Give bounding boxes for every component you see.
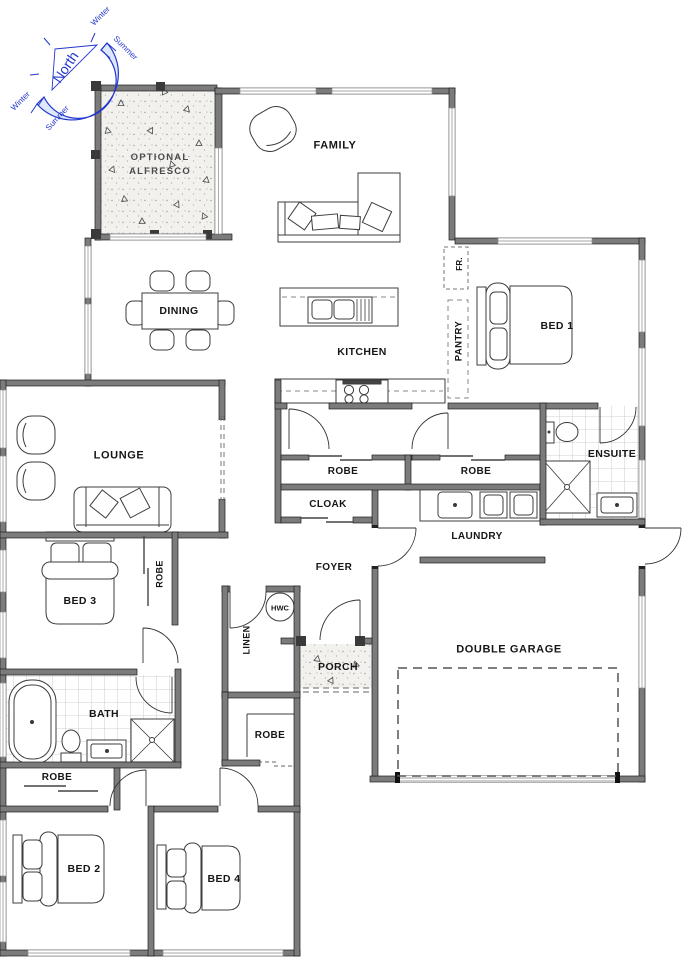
room-label-lounge: LOUNGE — [94, 451, 145, 462]
room-label-bath: BATH — [89, 709, 119, 720]
compass-winter-top-label: Winter — [89, 4, 112, 27]
room-label-pantry: PANTRY — [454, 321, 464, 361]
room-label-fridge: FR. — [456, 257, 464, 271]
room-label-robe-bed3: ROBE — [156, 560, 165, 588]
room-label-hwc: HWC — [271, 604, 289, 612]
room-label-bed2: BED 2 — [68, 864, 101, 875]
lounge-sofa — [74, 487, 171, 532]
garage-clearance-box — [398, 668, 618, 776]
room-label-bed4: BED 4 — [208, 874, 241, 885]
family-sofa — [278, 173, 400, 242]
lounge-armchair-2 — [17, 462, 55, 500]
room-label-kitchen: KITCHEN — [337, 347, 386, 358]
room-label-alfresco-line2: ALFRESCO — [129, 165, 191, 179]
bath-tub — [9, 680, 56, 764]
bath-toilet — [61, 730, 81, 762]
bed3-bed — [42, 532, 118, 624]
room-label-robe-hall-right: ROBE — [461, 467, 492, 477]
ensuite-vanity — [597, 493, 637, 517]
family-armchair — [244, 101, 302, 158]
kitchen-island — [280, 288, 398, 326]
bath-shower — [131, 719, 174, 762]
room-label-robe-bed2: ROBE — [42, 773, 73, 783]
ensuite-shower — [544, 461, 590, 513]
room-label-garage: DOUBLE GARAGE — [456, 645, 562, 656]
laundry-bench — [420, 489, 540, 521]
room-label-robe-hall-left: ROBE — [328, 467, 359, 477]
room-label-laundry: LAUNDRY — [451, 532, 502, 542]
room-label-alfresco: OPTIONAL ALFRESCO — [129, 151, 191, 179]
room-label-linen: LINEN — [243, 626, 252, 655]
lounge-armchair-1 — [17, 416, 55, 454]
room-label-dining: DINING — [159, 306, 198, 317]
bath-vanity — [87, 740, 126, 762]
kitchen-bench — [275, 379, 445, 403]
ensuite-toilet — [545, 422, 578, 443]
room-label-bed3: BED 3 — [64, 596, 97, 607]
room-label-ensuite: ENSUITE — [588, 449, 636, 460]
compass-winter-bottom-label: Winter — [9, 89, 32, 112]
room-label-foyer: FOYER — [316, 563, 352, 573]
room-label-porch: PORCH — [318, 662, 358, 673]
garage-door-opening — [395, 772, 620, 783]
room-label-cloak: CLOAK — [309, 500, 347, 510]
room-label-family: FAMILY — [314, 141, 357, 152]
room-label-alfresco-line1: OPTIONAL — [129, 151, 191, 165]
room-label-robe-mid: ROBE — [255, 731, 286, 741]
floor-plan: North Winter Summer Winter Summer OPTION… — [0, 0, 690, 960]
room-label-bed1: BED 1 — [541, 321, 574, 332]
